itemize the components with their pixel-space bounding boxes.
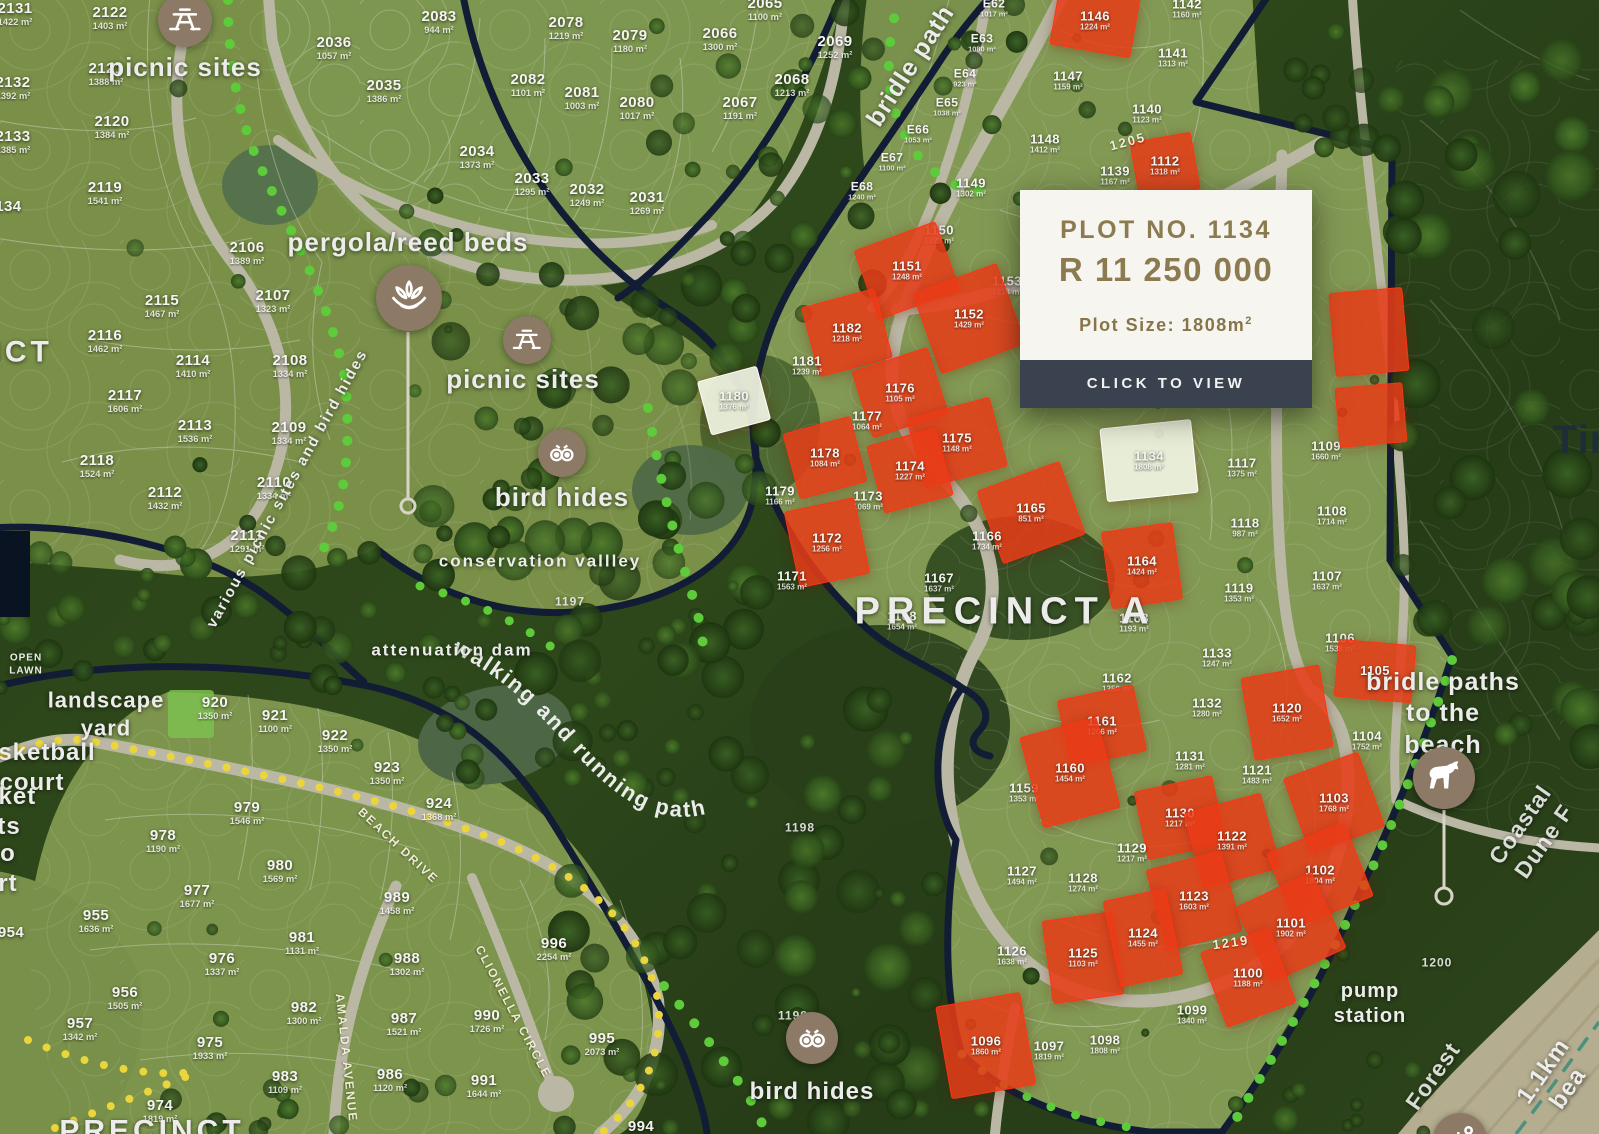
plot[interactable]: E67 1100 m² bbox=[878, 152, 905, 173]
plot-area: 1101 m² bbox=[511, 88, 546, 98]
plot-number: 1172 bbox=[812, 532, 842, 546]
plot[interactable]: 1132 1280 m² bbox=[1192, 697, 1222, 720]
plot-area: 1768 m² bbox=[1319, 806, 1349, 815]
plot[interactable]: 976 1337 m² bbox=[205, 951, 240, 977]
click-to-view-button[interactable]: CLICK TO VIEW bbox=[1020, 360, 1312, 408]
plot[interactable]: 2078 1219 m² bbox=[549, 15, 584, 41]
plot[interactable]: E63 1080 m² bbox=[968, 33, 996, 54]
plot[interactable]: E62 1017 m² bbox=[980, 0, 1008, 18]
plot-area: 1569 m² bbox=[263, 874, 298, 884]
plot-number: 2036 bbox=[317, 35, 352, 51]
plot[interactable]: 1160 1454 m² bbox=[1055, 762, 1085, 785]
plot[interactable]: 1139 1167 m² bbox=[1100, 165, 1130, 188]
plot[interactable]: 975 1933 m² bbox=[193, 1035, 228, 1061]
plot[interactable]: 1142 1160 m² bbox=[1172, 0, 1202, 20]
plot[interactable]: 921 1100 m² bbox=[258, 708, 292, 734]
plot[interactable]: 982 1300 m² bbox=[287, 1000, 322, 1026]
plot-area: 2073 m² bbox=[585, 1047, 620, 1057]
map-label: landscape yard bbox=[48, 687, 165, 742]
plot-number: 1178 bbox=[810, 447, 840, 461]
map-label: o rt bbox=[0, 839, 18, 899]
plot-number: 2113 bbox=[178, 418, 213, 434]
plot-number: 1181 bbox=[792, 355, 822, 369]
plot-number: 1174 bbox=[895, 460, 925, 474]
plot-number: 990 bbox=[470, 1008, 505, 1024]
plot-number: 922 bbox=[318, 728, 353, 744]
plot[interactable]: 1182 1218 m² bbox=[832, 322, 862, 345]
plot-number: 1140 bbox=[1132, 103, 1162, 117]
plot-area: 1247 m² bbox=[1202, 661, 1232, 670]
plot[interactable]: 1174 1227 m² bbox=[895, 460, 925, 483]
plot[interactable]: 978 1190 m² bbox=[146, 828, 180, 854]
plot-number: 2080 bbox=[620, 95, 655, 111]
plot-number: 2112 bbox=[148, 485, 183, 501]
plot-number: 978 bbox=[146, 828, 180, 844]
plot-area: 1391 m² bbox=[1217, 844, 1247, 853]
plot[interactable]: 1141 1313 m² bbox=[1158, 47, 1188, 70]
plot-area: 1424 m² bbox=[1127, 569, 1157, 578]
masterplan-map[interactable]: walking and running path 2131 1422 m² 21… bbox=[0, 0, 1599, 1134]
plot[interactable]: 1173 1069 m² bbox=[853, 490, 883, 513]
popup-plot-number: PLOT NO. 1134 bbox=[1020, 216, 1312, 245]
map-label: attenuation dam bbox=[371, 639, 532, 660]
plot-area: 1274 m² bbox=[1068, 886, 1098, 895]
plot-number: 980 bbox=[263, 858, 298, 874]
plot-area: 1637 m² bbox=[1312, 584, 1342, 593]
plot[interactable]: 1119 1353 m² bbox=[1224, 582, 1254, 605]
plot-number: 957 bbox=[63, 1016, 98, 1032]
plot-number: 2033 bbox=[515, 171, 550, 187]
plot[interactable]: 1107 1637 m² bbox=[1312, 570, 1342, 593]
plot-number: 920 bbox=[198, 695, 233, 711]
plot-number: 2115 bbox=[145, 293, 180, 309]
plot[interactable]: 987 1521 m² bbox=[387, 1011, 422, 1037]
plot-number: 2079 bbox=[613, 28, 648, 44]
plot-area: 1521 m² bbox=[387, 1027, 422, 1037]
plot[interactable]: 2106 1389 m² bbox=[230, 240, 265, 266]
plot-area: 1148 m² bbox=[942, 446, 972, 455]
plot-number: 2114 bbox=[176, 353, 211, 369]
plot[interactable]: 923 1350 m² bbox=[370, 760, 405, 786]
plot-area: 1375 m² bbox=[1227, 471, 1257, 480]
plot-area: 1160 m² bbox=[1172, 12, 1202, 21]
plot[interactable]: 1098 1808 m² bbox=[1090, 1034, 1121, 1057]
plot-number: 991 bbox=[467, 1073, 502, 1089]
plot[interactable]: 2068 1213 m² bbox=[775, 72, 810, 98]
plot-number: 1151 bbox=[892, 260, 922, 274]
plot-area: 1188 m² bbox=[1233, 981, 1263, 990]
plot[interactable]: 1125 1103 m² bbox=[1068, 947, 1098, 970]
map-label: picnic sites bbox=[446, 363, 600, 396]
plot-area: 1239 m² bbox=[792, 369, 822, 378]
plot-area: 1057 m² bbox=[317, 51, 352, 61]
plot[interactable]: 2080 1017 m² bbox=[620, 95, 655, 121]
plot[interactable]: 922 1350 m² bbox=[318, 728, 353, 754]
plot-number: 1127 bbox=[1007, 865, 1037, 879]
plot-area: 1248 m² bbox=[892, 274, 922, 283]
plot[interactable]: 2113 1536 m² bbox=[178, 418, 213, 444]
plot[interactable]: 989 1458 m² bbox=[380, 890, 415, 916]
plot[interactable]: 995 2073 m² bbox=[585, 1031, 620, 1057]
plot-area: 1100 m² bbox=[748, 12, 783, 22]
plot[interactable]: 991 1644 m² bbox=[467, 1073, 502, 1099]
plot[interactable]: 1100 1188 m² bbox=[1233, 967, 1263, 990]
plot[interactable]: 2079 1180 m² bbox=[613, 28, 648, 54]
plot[interactable]: 2065 1100 m² bbox=[748, 0, 783, 22]
plot[interactable]: 2114 1410 m² bbox=[176, 353, 211, 379]
plot[interactable]: 1120 1652 m² bbox=[1272, 702, 1302, 725]
map-label: 1200 bbox=[1422, 956, 1453, 971]
plot[interactable]: 924 1368 m² bbox=[422, 796, 457, 822]
plot-area: 1384 m² bbox=[95, 130, 130, 140]
plot-number: 1098 bbox=[1090, 1034, 1121, 1048]
plot[interactable]: 2118 1524 m² bbox=[80, 453, 115, 479]
plot[interactable]: 1180 1376 m² bbox=[719, 390, 749, 413]
plot-number: 1122 bbox=[1217, 830, 1247, 844]
plot-area: 1660 m² bbox=[1311, 454, 1341, 463]
map-label: cricket nets bbox=[0, 782, 36, 842]
plot[interactable]: 2122 1403 m² bbox=[93, 5, 128, 31]
plot-area: 1120 m² bbox=[373, 1083, 407, 1093]
plot[interactable]: 957 1342 m² bbox=[63, 1016, 98, 1042]
plot[interactable]: 1165 851 m² bbox=[1016, 502, 1046, 525]
plot-number: 1165 bbox=[1016, 502, 1046, 516]
plot-area: 1454 m² bbox=[1055, 776, 1085, 785]
plot-number: 2133 bbox=[0, 129, 30, 145]
plot[interactable]: 1103 1768 m² bbox=[1319, 792, 1349, 815]
plot[interactable]: 996 2254 m² bbox=[537, 936, 572, 962]
plot-info-popup: PLOT NO. 1134 R 11 250 000 Plot Size: 18… bbox=[1020, 190, 1312, 408]
plot[interactable]: 986 1120 m² bbox=[373, 1067, 407, 1093]
plot[interactable]: 1171 1563 m² bbox=[777, 570, 807, 593]
plot-area: 1412 m² bbox=[1030, 147, 1060, 156]
plot-number: 1149 bbox=[956, 177, 986, 191]
popup-plot-price: R 11 250 000 bbox=[1020, 251, 1312, 289]
plot[interactable]: E64 923 m² bbox=[953, 68, 977, 89]
plot[interactable]: 2108 1334 m² bbox=[273, 353, 308, 379]
plot-area: 1652 m² bbox=[1272, 716, 1302, 725]
plot-number: 2083 bbox=[422, 9, 457, 25]
plot[interactable]: 1166 1734 m² bbox=[972, 530, 1002, 553]
plot-number: 2069 bbox=[818, 34, 853, 50]
plot-number: 986 bbox=[373, 1067, 407, 1083]
plot-number: 2081 bbox=[565, 85, 600, 101]
plot-number: 2035 bbox=[367, 78, 402, 94]
map-label: 1198 bbox=[785, 821, 815, 836]
plot[interactable]: 1109 1660 m² bbox=[1311, 440, 1341, 463]
plot-number: 1124 bbox=[1128, 927, 1158, 941]
plot[interactable]: 2131 1422 m² bbox=[0, 1, 32, 27]
plot[interactable]: 1127 1494 m² bbox=[1007, 865, 1037, 888]
map-label: bird hides bbox=[750, 1077, 875, 1107]
plot-area: 1180 m² bbox=[613, 44, 648, 54]
plot-number: 2078 bbox=[549, 15, 584, 31]
plot[interactable]: 981 1131 m² bbox=[285, 930, 319, 956]
plot[interactable]: 994 bbox=[628, 1119, 654, 1134]
plot-number: 2065 bbox=[748, 0, 783, 12]
plot[interactable]: 2083 944 m² bbox=[422, 9, 457, 35]
map-label: picnic sites bbox=[108, 51, 262, 84]
map-label: PRECINCT bbox=[59, 1112, 244, 1134]
plot[interactable]: 2117 1606 m² bbox=[108, 388, 143, 414]
plot[interactable]: 1179 1166 m² bbox=[765, 485, 795, 508]
plot-area: 1902 m² bbox=[1276, 931, 1306, 940]
plot[interactable]: E66 1053 m² bbox=[904, 124, 932, 145]
map-label: NCT bbox=[0, 333, 53, 371]
plot-area: 1295 m² bbox=[515, 187, 550, 197]
plot[interactable]: 1177 1064 m² bbox=[852, 410, 882, 433]
plot[interactable]: 920 1350 m² bbox=[198, 695, 233, 721]
map-label: conservation vallley bbox=[439, 550, 642, 571]
plot-number: 1139 bbox=[1100, 165, 1130, 179]
plot[interactable]: 1096 1860 m² bbox=[971, 1035, 1002, 1058]
plot-number: 923 bbox=[370, 760, 405, 776]
plot[interactable]: 1172 1256 m² bbox=[812, 532, 842, 555]
plot[interactable]: 1151 1248 m² bbox=[892, 260, 922, 283]
plot-area: 1636 m² bbox=[79, 924, 114, 934]
plot-area: 1219 m² bbox=[549, 31, 584, 41]
plot[interactable]: 1149 1302 m² bbox=[956, 177, 986, 200]
plot[interactable]: 1129 1217 m² bbox=[1117, 842, 1147, 865]
plot-area: 1249 m² bbox=[570, 198, 605, 208]
plot[interactable]: 2116 1462 m² bbox=[88, 328, 123, 354]
plot-number: 955 bbox=[79, 908, 114, 924]
plot-area: 1003 m² bbox=[565, 101, 600, 111]
plot-number: 2067 bbox=[723, 95, 758, 111]
plot-number: 979 bbox=[230, 800, 265, 816]
plot[interactable]: 1101 1902 m² bbox=[1276, 917, 1306, 940]
map-label: pump station bbox=[1334, 979, 1407, 1029]
plot[interactable]: 1128 1274 m² bbox=[1068, 872, 1098, 895]
plot-number: 2117 bbox=[108, 388, 143, 404]
plot-number: 2116 bbox=[88, 328, 123, 344]
plot[interactable]: E65 1038 m² bbox=[933, 97, 961, 118]
plot[interactable]: 2031 1269 m² bbox=[630, 190, 665, 216]
plot-area: 1376 m² bbox=[719, 404, 749, 413]
plot[interactable]: 2115 1467 m² bbox=[145, 293, 180, 319]
plot-number: 1128 bbox=[1068, 872, 1098, 886]
plot[interactable]: 1152 1429 m² bbox=[954, 308, 984, 331]
plot-area: 1677 m² bbox=[180, 899, 215, 909]
plot[interactable]: 988 1302 m² bbox=[390, 951, 425, 977]
plot-area: 1524 m² bbox=[80, 469, 115, 479]
plot[interactable]: 1133 1247 m² bbox=[1202, 647, 1232, 670]
plot-number: 1152 bbox=[954, 308, 984, 322]
plot-area: 1536 m² bbox=[178, 434, 213, 444]
plot-area: 1240 m² bbox=[848, 193, 876, 201]
plot-number: 977 bbox=[180, 883, 215, 899]
plot[interactable]: 983 1109 m² bbox=[268, 1069, 302, 1095]
map-label: PRECINCT A bbox=[855, 588, 1156, 636]
plot-area: 1808 m² bbox=[1134, 464, 1164, 473]
plot-area: 1403 m² bbox=[93, 21, 128, 31]
plot[interactable]: 2107 1323 m² bbox=[256, 288, 291, 314]
plot-shape bbox=[1328, 287, 1409, 377]
plot[interactable]: 954 bbox=[0, 925, 24, 941]
plot-area: 1644 m² bbox=[467, 1089, 502, 1099]
plot-area: 1541 m² bbox=[88, 196, 123, 206]
plot-number: 996 bbox=[537, 936, 572, 952]
plot[interactable]: 2033 1295 m² bbox=[515, 171, 550, 197]
plot-area: 1313 m² bbox=[1158, 61, 1188, 70]
plot-area: 1340 m² bbox=[1177, 1018, 1208, 1027]
plot-number: 1175 bbox=[942, 432, 972, 446]
plot[interactable]: 955 1636 m² bbox=[79, 908, 114, 934]
plot[interactable]: 1112 1318 m² bbox=[1150, 155, 1180, 178]
plot[interactable]: 1146 1224 m² bbox=[1080, 10, 1110, 33]
plot[interactable]: 2133 1385 m² bbox=[0, 129, 30, 155]
plot-area: 1123 m² bbox=[1132, 117, 1162, 126]
plot-area: 1638 m² bbox=[997, 959, 1027, 968]
plot-area: 1213 m² bbox=[775, 88, 810, 98]
plot[interactable]: 1131 1281 m² bbox=[1175, 750, 1205, 773]
plot[interactable]: 1118 987 m² bbox=[1230, 517, 1259, 540]
plot-area: 1227 m² bbox=[895, 474, 925, 483]
plot-area: 1606 m² bbox=[108, 404, 143, 414]
plot-area: 1505 m² bbox=[108, 1001, 143, 1011]
plot-area: 1256 m² bbox=[812, 546, 842, 555]
plot-number: 2107 bbox=[256, 288, 291, 304]
plot-area: 1191 m² bbox=[723, 111, 758, 121]
plot-area: 1432 m² bbox=[148, 501, 183, 511]
plot-area: 1334 m² bbox=[273, 369, 308, 379]
plot[interactable]: 990 1726 m² bbox=[470, 1008, 505, 1034]
plot[interactable]: 1108 1714 m² bbox=[1317, 505, 1347, 528]
plot[interactable]: 980 1569 m² bbox=[263, 858, 298, 884]
plot[interactable]: 1099 1340 m² bbox=[1177, 1004, 1208, 1027]
plot-number: 2132 bbox=[0, 75, 30, 91]
plot-area: 1252 m² bbox=[818, 50, 853, 60]
plot[interactable]: 1097 1819 m² bbox=[1034, 1040, 1065, 1063]
plot-number: 1177 bbox=[852, 410, 882, 424]
plot[interactable]: 1124 1455 m² bbox=[1128, 927, 1158, 950]
plot[interactable]: 1134 1808 m² bbox=[1134, 450, 1164, 473]
plot-area: 1302 m² bbox=[956, 191, 986, 200]
plot-area: 1350 m² bbox=[198, 711, 233, 721]
plot-number: 2031 bbox=[630, 190, 665, 206]
popup-plot-size: Plot Size: 1808m2 bbox=[1020, 315, 1312, 336]
plot[interactable]: 2082 1101 m² bbox=[511, 72, 546, 98]
plot-area: 1280 m² bbox=[1192, 711, 1222, 720]
plot[interactable]: 2066 1300 m² bbox=[703, 26, 738, 52]
plot-number: 1107 bbox=[1312, 570, 1342, 584]
plot-number: 1117 bbox=[1227, 457, 1257, 471]
plot-area: 1734 m² bbox=[972, 544, 1002, 553]
plot[interactable]: 2032 1249 m² bbox=[570, 182, 605, 208]
plot[interactable]: 1175 1148 m² bbox=[942, 432, 972, 455]
plot-area: 1159 m² bbox=[1053, 84, 1083, 93]
plot-area: 851 m² bbox=[1016, 516, 1046, 525]
plot-number: 989 bbox=[380, 890, 415, 906]
plot-number: 1126 bbox=[997, 945, 1027, 959]
plot-area: 1100 m² bbox=[258, 724, 292, 734]
plot-area: 1385 m² bbox=[0, 145, 30, 155]
plot-number: 1141 bbox=[1158, 47, 1188, 61]
plot[interactable]: E68 1240 m² bbox=[848, 181, 876, 202]
plot-area: 1218 m² bbox=[832, 336, 862, 345]
plot-number: 1101 bbox=[1276, 917, 1306, 931]
plot[interactable]: 1122 1391 m² bbox=[1217, 830, 1247, 853]
plot-area: 2254 m² bbox=[537, 952, 572, 962]
plot-number: 1123 bbox=[1179, 890, 1209, 904]
plot-number: 1180 bbox=[719, 390, 749, 404]
plot-area: 1337 m² bbox=[205, 967, 240, 977]
plot-area: 1458 m² bbox=[380, 906, 415, 916]
plot-number: 1171 bbox=[777, 570, 807, 584]
plot-area: 923 m² bbox=[953, 80, 977, 88]
lotus-icon bbox=[376, 265, 442, 331]
plot-area: 1323 m² bbox=[256, 304, 291, 314]
plot[interactable]: 1181 1239 m² bbox=[792, 355, 822, 378]
plot[interactable]: 2132 1392 m² bbox=[0, 75, 30, 101]
plot-number: 2068 bbox=[775, 72, 810, 88]
plot[interactable]: 1121 1483 m² bbox=[1242, 764, 1272, 787]
plot[interactable]: 2134 bbox=[0, 199, 21, 215]
plot-area: 1109 m² bbox=[268, 1085, 302, 1095]
plot-number: 2134 bbox=[0, 199, 21, 215]
plot[interactable]: 2109 1334 m² bbox=[272, 420, 307, 446]
plot-number: 954 bbox=[0, 925, 24, 941]
plot[interactable]: 2034 1373 m² bbox=[460, 144, 495, 170]
plot-area: 1933 m² bbox=[193, 1051, 228, 1061]
plot-number: 1129 bbox=[1117, 842, 1147, 856]
plot-area: 1064 m² bbox=[852, 424, 882, 433]
plot-area: 1808 m² bbox=[1090, 1048, 1121, 1057]
horse-icon bbox=[1413, 747, 1475, 809]
plot-number: 2082 bbox=[511, 72, 546, 88]
plot[interactable]: 1178 1084 m² bbox=[810, 447, 840, 470]
plot-area: 1350 m² bbox=[370, 776, 405, 786]
plot[interactable]: 1117 1375 m² bbox=[1227, 457, 1257, 480]
plot-area: 1167 m² bbox=[1100, 179, 1130, 188]
plot[interactable]: 1147 1159 m² bbox=[1053, 70, 1083, 93]
plot[interactable]: 1164 1424 m² bbox=[1127, 555, 1157, 578]
plot[interactable]: 2112 1432 m² bbox=[148, 485, 183, 511]
plot[interactable]: 979 1546 m² bbox=[230, 800, 265, 826]
plot-area: 1105 m² bbox=[885, 396, 915, 405]
plot-area: 1353 m² bbox=[1224, 596, 1254, 605]
plot-number: 2120 bbox=[95, 114, 130, 130]
plot[interactable]: 2036 1057 m² bbox=[317, 35, 352, 61]
plot-number: 1167 bbox=[924, 572, 954, 586]
plot[interactable]: 2119 1541 m² bbox=[88, 180, 123, 206]
plot[interactable]: 2035 1386 m² bbox=[367, 78, 402, 104]
plot[interactable]: 1126 1638 m² bbox=[997, 945, 1027, 968]
plot[interactable]: 1123 1603 m² bbox=[1179, 890, 1209, 913]
plot[interactable]: 2067 1191 m² bbox=[723, 95, 758, 121]
plot[interactable]: 2120 1384 m² bbox=[95, 114, 130, 140]
plot[interactable]: 956 1505 m² bbox=[108, 985, 143, 1011]
plot-number: 2106 bbox=[230, 240, 265, 256]
plot-area: 1368 m² bbox=[422, 812, 457, 822]
plot[interactable]: 2069 1252 m² bbox=[818, 34, 853, 60]
plot[interactable]: 2081 1003 m² bbox=[565, 85, 600, 111]
plot-number: 1112 bbox=[1150, 155, 1180, 169]
plot-area: 1038 m² bbox=[933, 109, 961, 117]
map-dark-rectangle bbox=[0, 531, 30, 617]
plot-number: 1179 bbox=[765, 485, 795, 499]
plot-number: 982 bbox=[287, 1000, 322, 1016]
plot-area: 1389 m² bbox=[230, 256, 265, 266]
map-label: 1197 bbox=[555, 595, 585, 610]
plot[interactable]: 1140 1123 m² bbox=[1132, 103, 1162, 126]
plot-number: 1099 bbox=[1177, 1004, 1208, 1018]
plot[interactable]: 977 1677 m² bbox=[180, 883, 215, 909]
plot-area: 1467 m² bbox=[145, 309, 180, 319]
plot[interactable]: 1148 1412 m² bbox=[1030, 133, 1060, 156]
plot[interactable]: 1176 1105 m² bbox=[885, 382, 915, 405]
map-label: bird hides bbox=[495, 481, 629, 514]
